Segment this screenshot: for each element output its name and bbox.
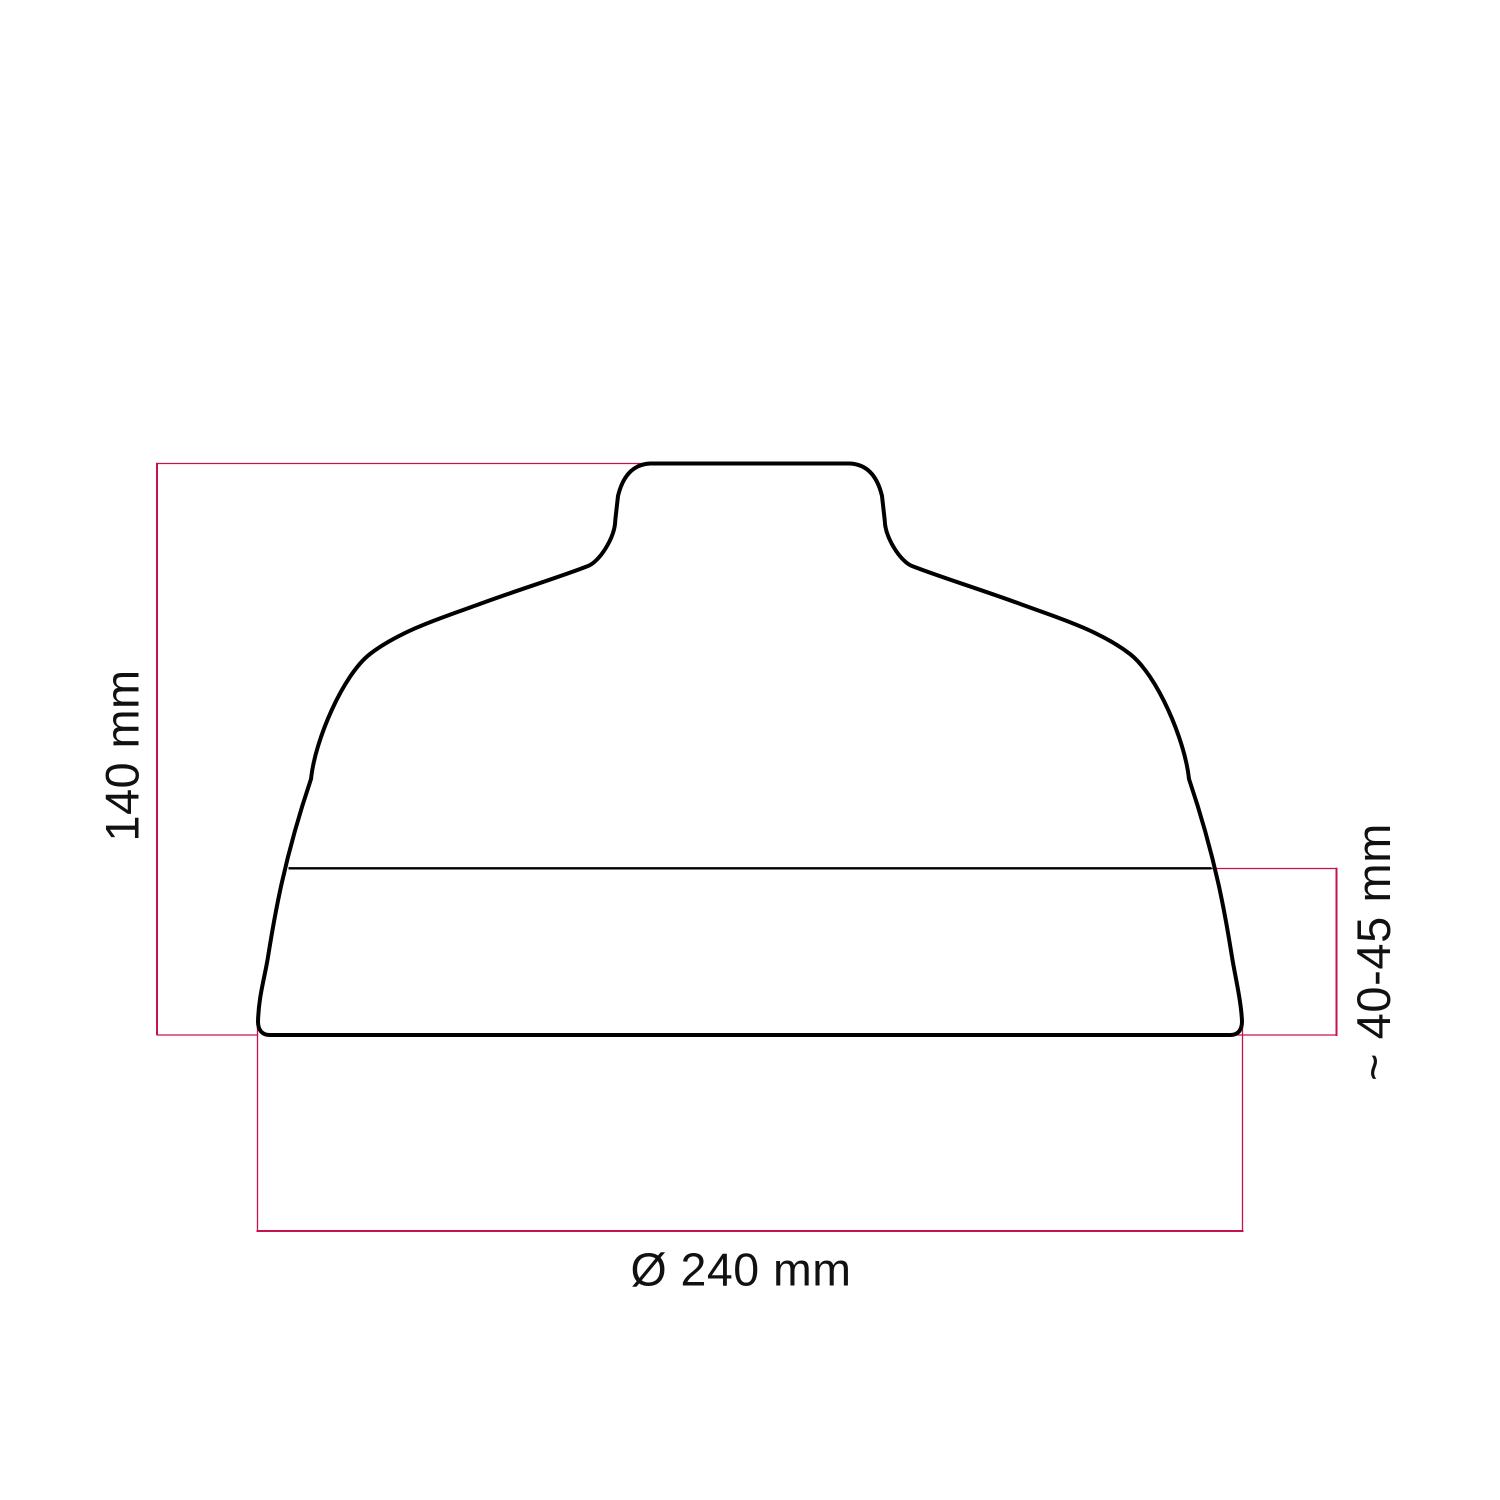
svg-text:140 mm: 140 mm xyxy=(96,669,149,841)
svg-text:Ø 240 mm: Ø 240 mm xyxy=(630,1244,851,1296)
svg-text:~ 40-45 mm: ~ 40-45 mm xyxy=(1347,823,1400,1081)
